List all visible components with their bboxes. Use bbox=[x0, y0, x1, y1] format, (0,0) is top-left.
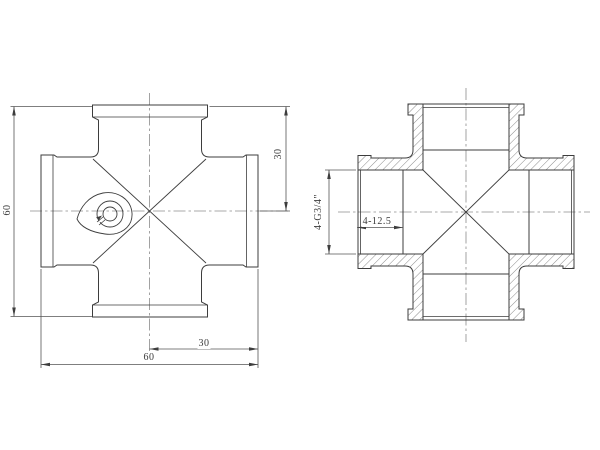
dim-label-front-half-width: 30 bbox=[198, 339, 211, 349]
front-view bbox=[11, 93, 292, 368]
dim-label-section-depth: 4-12.5 bbox=[362, 217, 393, 227]
drawing-canvas: 60 30 30 60 4-G3/4" 4-12.5 bbox=[0, 0, 600, 450]
front-view-centerlines bbox=[30, 93, 291, 352]
front-dimensions bbox=[11, 107, 291, 369]
dim-label-front-height: 60 bbox=[3, 204, 13, 217]
dim-label-front-half-height: 30 bbox=[274, 148, 284, 161]
cross-fitting-drawing bbox=[0, 0, 600, 450]
dim-label-section-thread: 4-G3/4" bbox=[314, 193, 324, 231]
manufacturer-logo-icon bbox=[77, 193, 132, 235]
dim-label-front-width: 60 bbox=[143, 353, 156, 363]
